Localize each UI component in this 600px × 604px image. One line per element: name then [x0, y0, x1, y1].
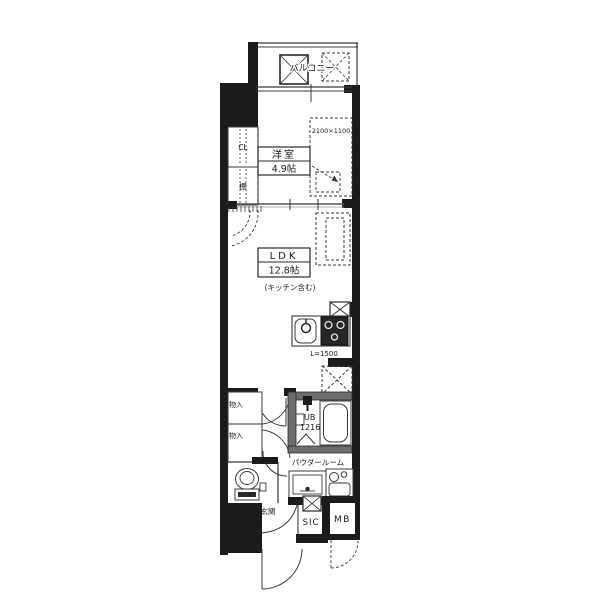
bathtub: [320, 401, 351, 445]
storage-lower-label: 物入: [229, 431, 243, 440]
storage-upper-label: 物入: [229, 400, 243, 409]
ldk-label-box: LDK 12.8帖: [258, 248, 310, 277]
folding-door-fan: [231, 210, 258, 246]
shower-icon: [303, 396, 312, 411]
ldk-room: LDK 12.8帖 (キッチン含む): [258, 213, 350, 292]
sofa-outline: [316, 213, 350, 265]
powder-room-label: パウダールーム: [292, 457, 344, 467]
unit-bath-size-label: 1216: [300, 423, 320, 432]
ldk-size-label: 12.8帖: [269, 265, 300, 277]
balcony-left-wall: [248, 42, 258, 86]
mb-label: MB: [334, 515, 351, 525]
western-room-label-box: 洋室 4.9帖: [258, 147, 310, 175]
balcony: バルコニー: [248, 42, 358, 88]
ub-top-wall: [288, 392, 352, 400]
window-right-stub: [344, 85, 354, 93]
kitchen-stove: [321, 317, 348, 345]
meter-box: MB: [322, 496, 360, 540]
closet-label: CL: [238, 143, 248, 152]
refrigerator-outline: [322, 366, 352, 394]
floor-plan: バルコニー CL 棚 210: [0, 0, 600, 600]
kitchen-sink: [295, 319, 316, 343]
balcony-label: バルコニー: [290, 63, 335, 74]
sliding-partition: [228, 199, 354, 246]
shelf-label: 棚: [239, 181, 247, 191]
floor-plan-page: バルコニー CL 棚 210: [0, 0, 600, 600]
entrance-label: 玄関: [261, 506, 276, 516]
vanity: [289, 471, 326, 498]
bed-dimensions-label: 2100×1100: [312, 127, 351, 135]
entrance-door: [262, 549, 302, 589]
kitchen-length-label: L=1500: [310, 350, 338, 358]
sic-label: SIC: [303, 518, 320, 528]
western-room: CL 棚 2100×1100 洋室 4.9帖: [228, 118, 352, 205]
ub-bottom-wall: [288, 446, 352, 453]
top-left-wall-block: [220, 83, 258, 127]
western-room-size-label: 4.9帖: [272, 163, 297, 175]
bed-outline: 2100×1100: [310, 118, 352, 196]
toilet-room: [228, 457, 278, 503]
closet: CL 棚: [228, 127, 258, 205]
unit-bath: UB 1216: [288, 392, 352, 453]
bottom-left-block: [225, 503, 262, 545]
ub-folding-door: [297, 434, 315, 444]
toilet-icon: [235, 469, 266, 501]
unit-bath-label: UB: [304, 413, 315, 422]
vanity-faucet-icon: [305, 487, 309, 491]
ldk-label: LDK: [270, 251, 299, 262]
storage-lower-box: [228, 424, 262, 462]
toilet-top-wall: [252, 457, 278, 464]
left-wall: [220, 127, 228, 555]
range-hood-box: [330, 302, 350, 317]
pipe-space-box: [303, 496, 321, 511]
washer-space: [326, 469, 353, 499]
western-room-label: 洋室: [272, 148, 296, 161]
ub-left-wall: [288, 392, 296, 448]
right-wall-upper: [352, 85, 360, 397]
bed-pillow-outline: [316, 172, 340, 192]
storage-closets: 物入 物入: [228, 392, 290, 462]
mb-door-dashed: [331, 540, 358, 568]
ldk-note-label: (キッチン含む): [265, 282, 316, 292]
kitchen: L=1500: [292, 302, 360, 394]
